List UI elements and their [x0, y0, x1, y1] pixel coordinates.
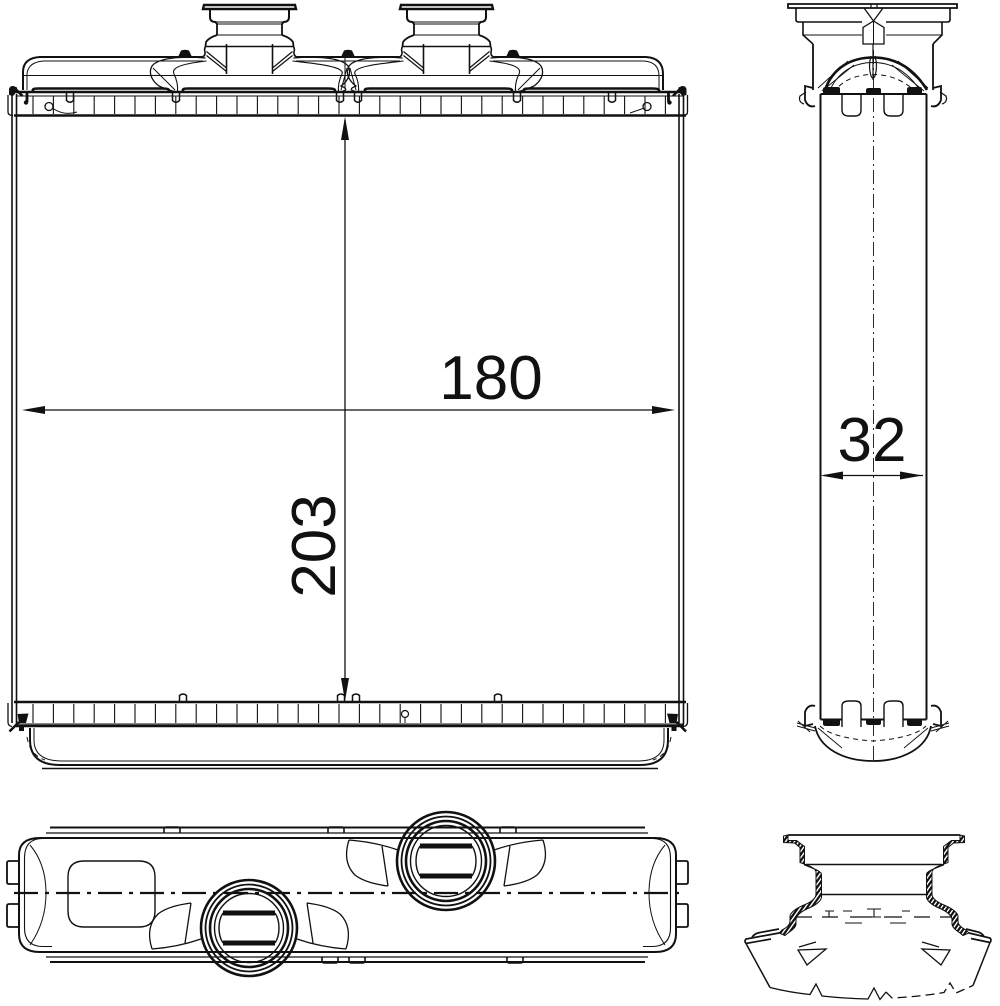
svg-text:203: 203 — [280, 494, 349, 597]
svg-text:32: 32 — [838, 406, 907, 475]
svg-text:180: 180 — [439, 344, 542, 413]
